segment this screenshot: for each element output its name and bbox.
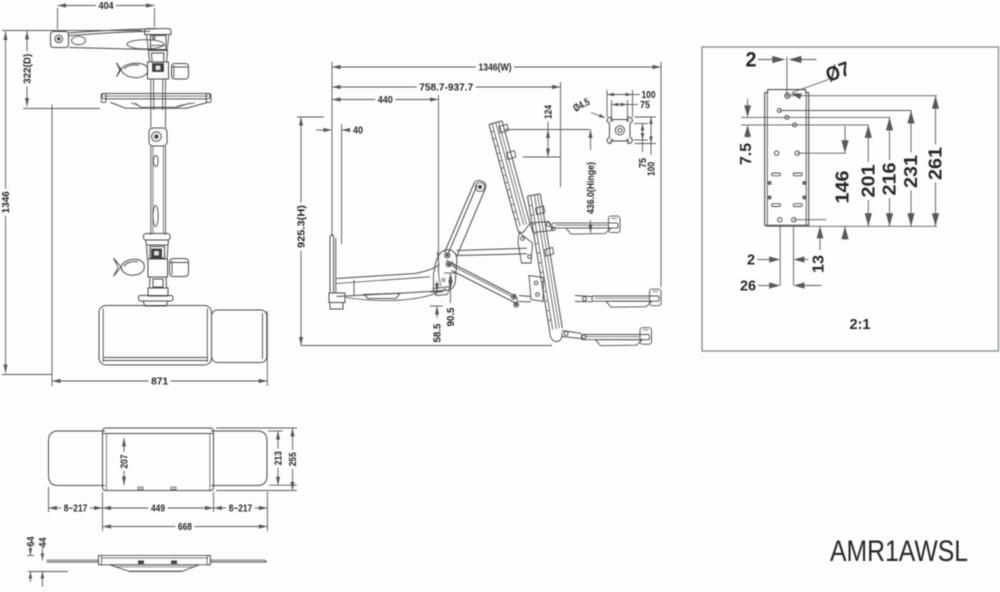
svg-text:207: 207 xyxy=(118,454,130,468)
svg-text:322(D): 322(D) xyxy=(21,54,33,84)
svg-text:255: 255 xyxy=(287,452,299,466)
svg-text:100: 100 xyxy=(645,162,657,176)
svg-text:90.5: 90.5 xyxy=(445,307,457,326)
svg-text:231: 231 xyxy=(901,155,921,188)
svg-text:2: 2 xyxy=(746,49,757,72)
svg-text:1346(W): 1346(W) xyxy=(479,61,512,73)
svg-text:404: 404 xyxy=(99,0,114,12)
svg-text:8~217: 8~217 xyxy=(64,502,88,514)
svg-text:213: 213 xyxy=(272,451,284,465)
svg-text:40: 40 xyxy=(353,124,363,136)
svg-text:26: 26 xyxy=(740,278,756,295)
svg-text:216: 216 xyxy=(880,163,900,196)
svg-text:2:1: 2:1 xyxy=(850,316,871,333)
svg-text:1346: 1346 xyxy=(0,191,12,213)
svg-text:2: 2 xyxy=(747,252,755,269)
svg-text:58.5: 58.5 xyxy=(431,323,443,342)
svg-text:925.3(H): 925.3(H) xyxy=(295,205,307,248)
svg-text:8~217: 8~217 xyxy=(229,502,253,514)
svg-text:668: 668 xyxy=(178,521,192,533)
svg-text:201: 201 xyxy=(858,165,878,198)
svg-text:75: 75 xyxy=(640,99,650,111)
svg-text:64: 64 xyxy=(25,536,37,546)
svg-text:758.7-937.7: 758.7-937.7 xyxy=(419,81,473,93)
svg-text:449: 449 xyxy=(151,502,165,514)
svg-text:124: 124 xyxy=(542,105,554,119)
svg-text:7.5: 7.5 xyxy=(738,143,755,165)
svg-text:13: 13 xyxy=(810,255,827,273)
svg-text:440: 440 xyxy=(378,94,393,106)
svg-text:871: 871 xyxy=(151,375,168,387)
svg-text:146: 146 xyxy=(833,171,853,204)
svg-text:44: 44 xyxy=(37,537,49,547)
svg-text:436.0(Hinge): 436.0(Hinge) xyxy=(585,162,597,214)
svg-text:AMR1AWSL: AMR1AWSL xyxy=(830,535,968,568)
svg-text:261: 261 xyxy=(926,147,946,180)
